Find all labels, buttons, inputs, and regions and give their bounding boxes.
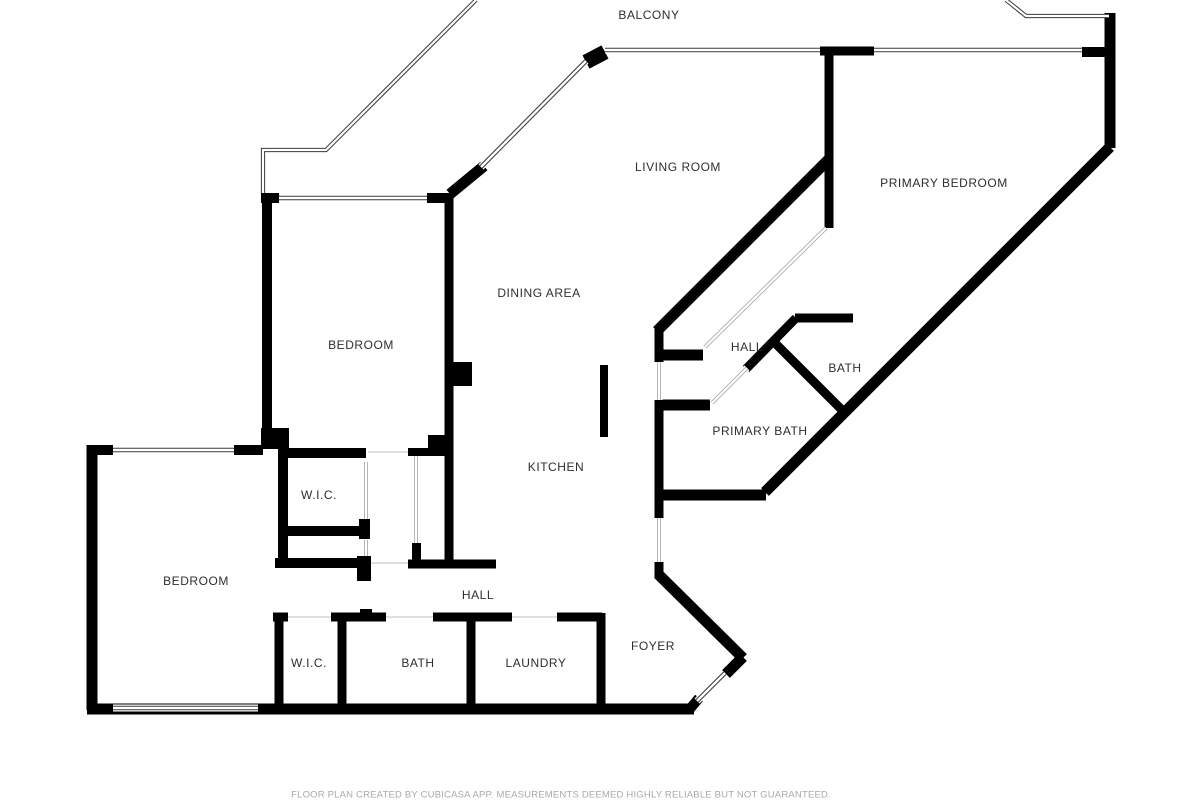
room-label-primary-bedroom: PRIMARY BEDROOM [880,176,1008,190]
room-label-bedroom-upper: BEDROOM [328,338,394,352]
room-label-hall-lower: HALL [462,588,494,602]
footer-disclaimer: FLOOR PLAN CREATED BY CUBICASA APP. MEAS… [291,790,831,800]
room-label-hall-upper: HALL [731,340,763,354]
floorplan-svg [0,0,1200,800]
room-label-wic-upper: W.I.C. [301,488,337,502]
room-label-balcony: BALCONY [618,8,679,22]
floorplan-canvas: BALCONY LIVING ROOM PRIMARY BEDROOM DINI… [0,0,1200,800]
room-label-wic-lower: W.I.C. [291,656,327,670]
room-label-foyer: FOYER [631,639,675,653]
room-label-bath-upper: BATH [828,361,861,375]
room-label-bedroom-lower: BEDROOM [163,574,229,588]
room-label-bath-lower: BATH [401,656,434,670]
room-label-laundry: LAUNDRY [506,656,567,670]
room-label-living-room: LIVING ROOM [635,160,721,174]
room-label-dining-area: DINING AREA [497,286,580,300]
room-label-primary-bath: PRIMARY BATH [712,424,807,438]
room-label-kitchen: KITCHEN [528,460,584,474]
